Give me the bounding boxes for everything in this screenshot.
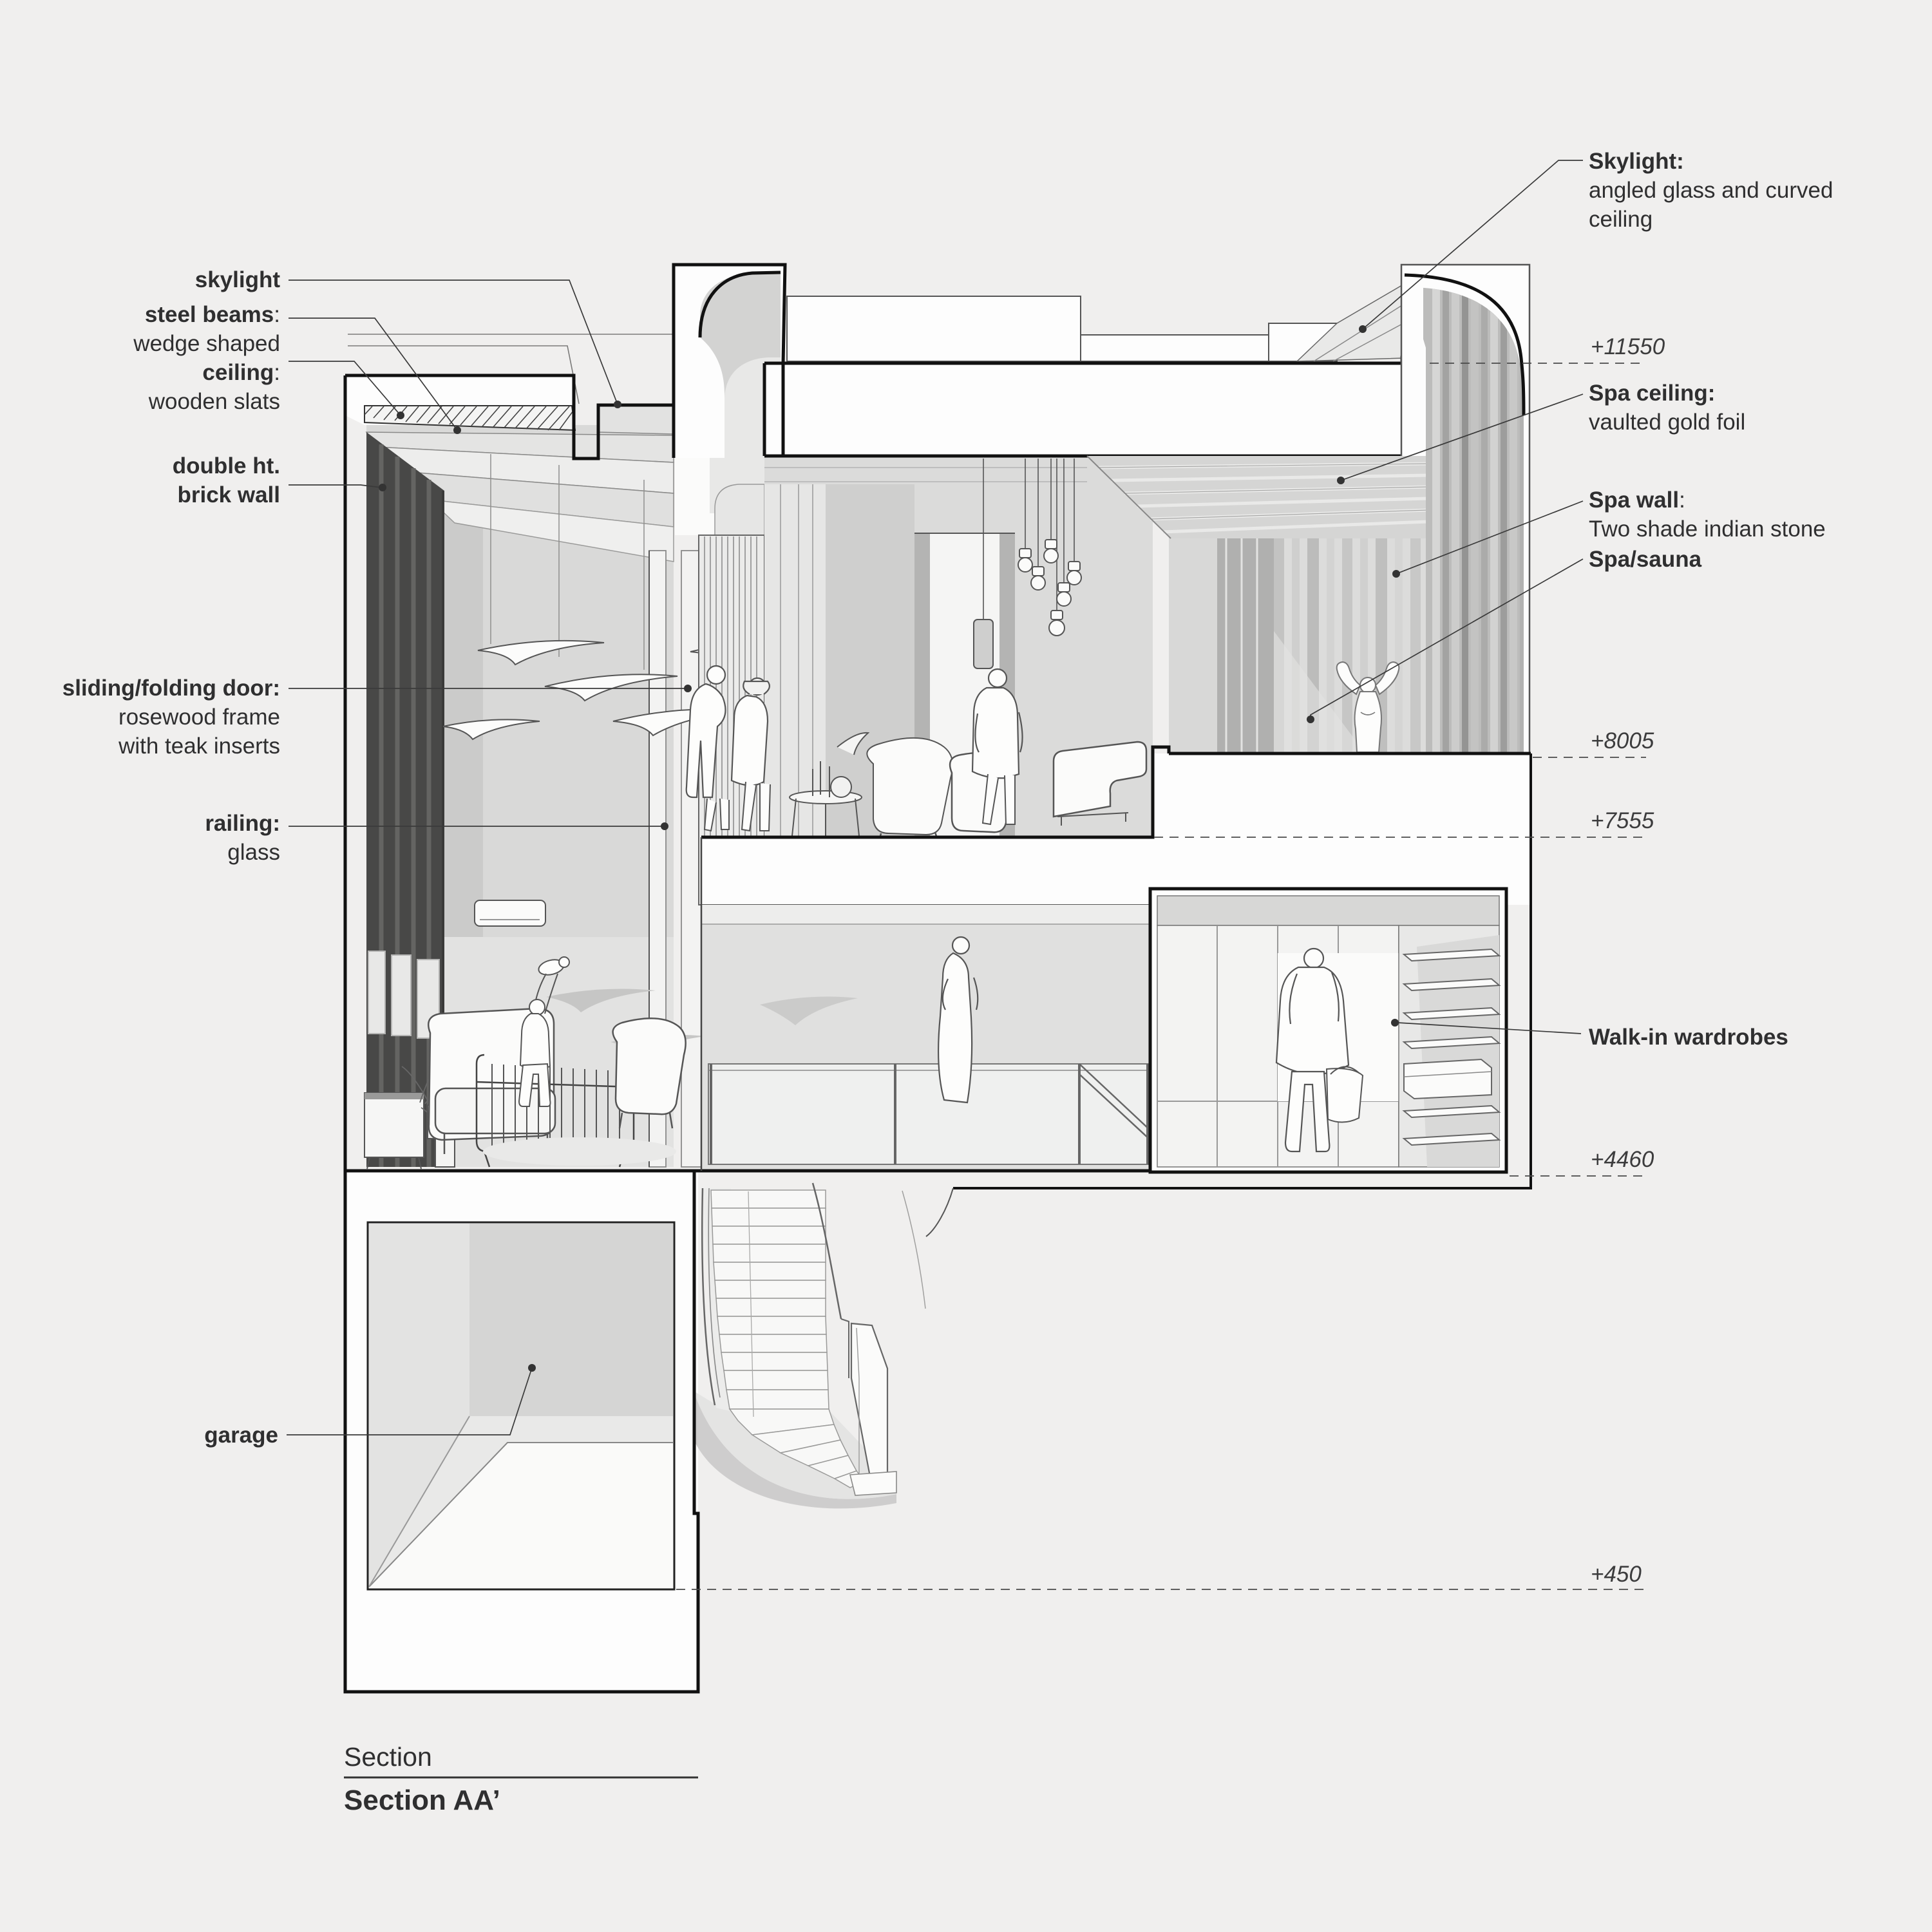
svg-text:glass: glass (227, 840, 280, 865)
svg-text:Two shade indian stone: Two shade indian stone (1589, 516, 1826, 542)
svg-text:ceiling:: ceiling: (202, 360, 280, 385)
svg-text:Spa/sauna: Spa/sauna (1589, 547, 1702, 572)
svg-text:ceiling: ceiling (1589, 207, 1653, 232)
svg-text:Section: Section (344, 1742, 432, 1772)
svg-text:Skylight:: Skylight: (1589, 149, 1684, 174)
svg-text:rosewood frame: rosewood frame (118, 705, 280, 730)
svg-text:brick wall: brick wall (177, 482, 280, 507)
svg-text:skylight: skylight (195, 267, 281, 292)
svg-text:Walk-in wardrobes: Walk-in wardrobes (1589, 1025, 1788, 1050)
svg-text:+450: +450 (1591, 1562, 1642, 1587)
svg-text:steel beams:: steel beams: (145, 302, 280, 327)
svg-text:+11550: +11550 (1591, 334, 1665, 359)
svg-text:Section AA’: Section AA’ (344, 1785, 500, 1816)
svg-text:+8005: +8005 (1591, 728, 1654, 753)
svg-text:railing:: railing: (205, 811, 280, 836)
svg-text:+4460: +4460 (1591, 1147, 1654, 1172)
svg-text:Spa ceiling:: Spa ceiling: (1589, 381, 1715, 406)
svg-text:Spa wall:: Spa wall: (1589, 488, 1685, 513)
svg-text:with teak inserts: with teak inserts (118, 734, 280, 759)
svg-text:double ht.: double ht. (173, 453, 280, 478)
svg-text:garage: garage (204, 1423, 278, 1448)
svg-text:wooden slats: wooden slats (148, 389, 280, 414)
svg-text:+7555: +7555 (1591, 808, 1654, 833)
svg-text:vaulted gold foil: vaulted gold foil (1589, 410, 1745, 435)
svg-text:wedge shaped: wedge shaped (133, 331, 280, 356)
svg-text:sliding/folding door:: sliding/folding door: (62, 676, 280, 701)
svg-text:angled glass and curved: angled glass and curved (1589, 178, 1833, 203)
